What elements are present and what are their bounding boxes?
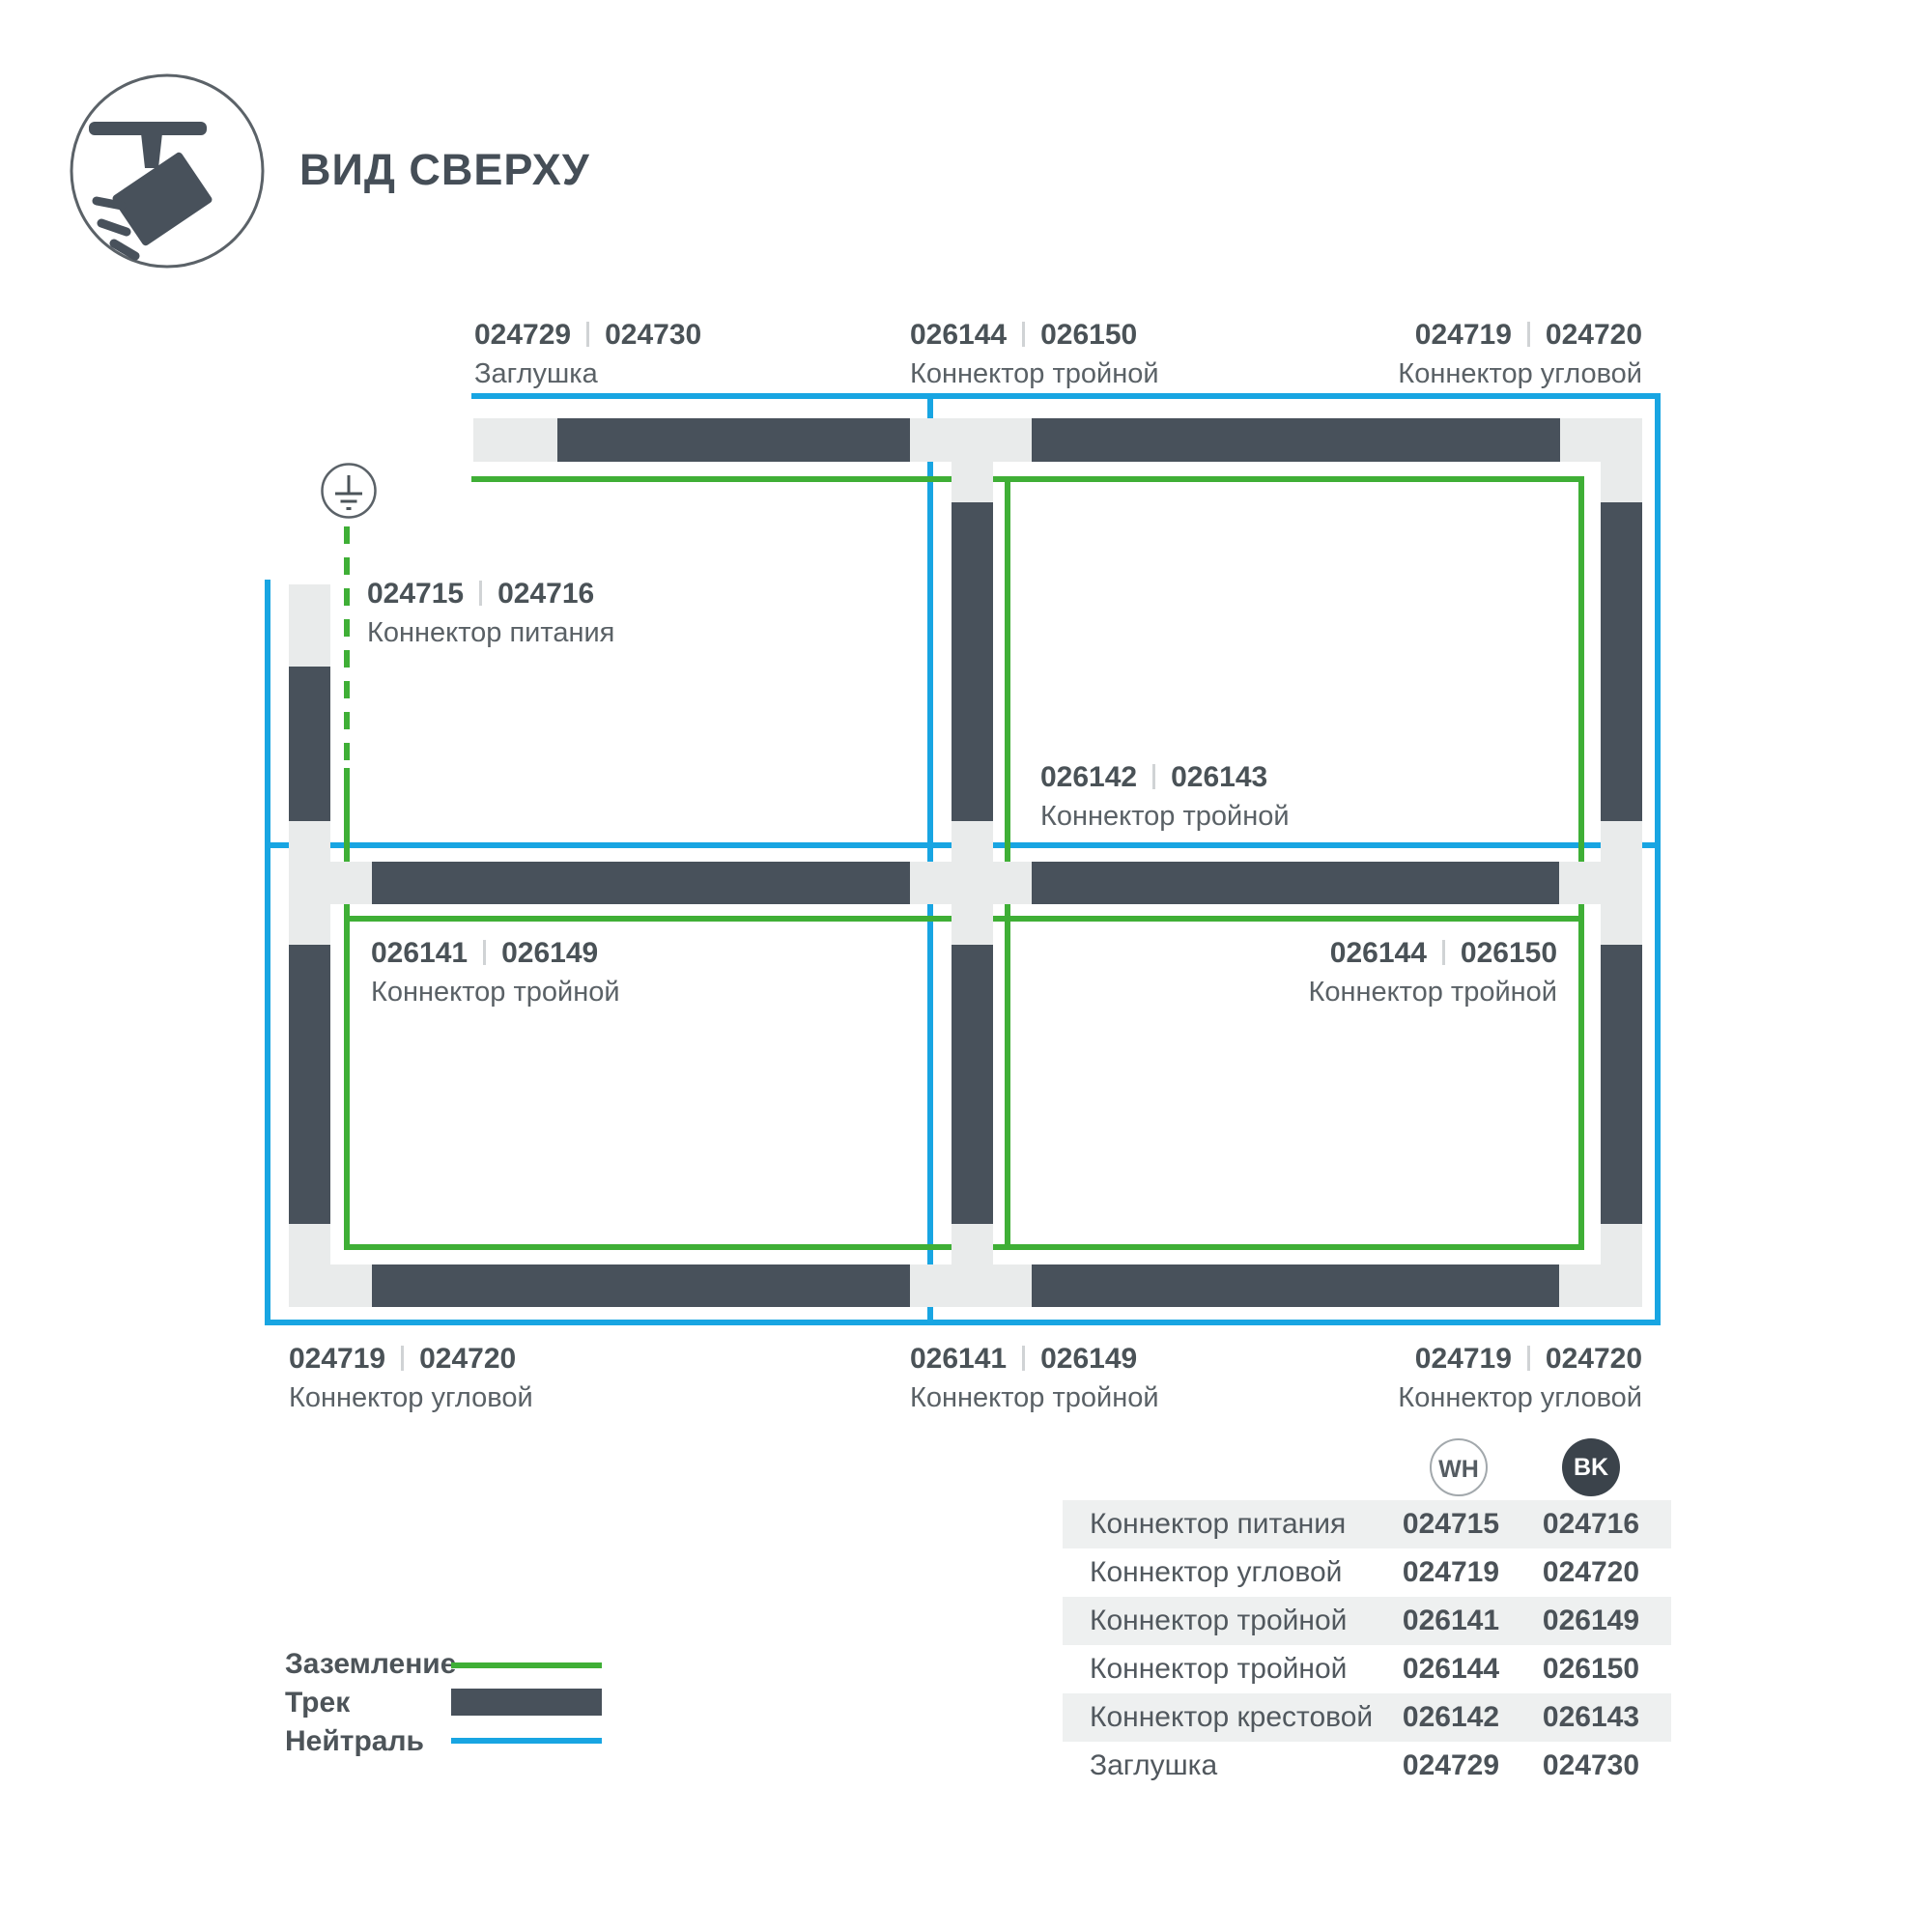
- t-connector-piece-bottom-stub: [952, 1224, 993, 1264]
- part-numbers: 026141026149: [910, 1343, 1159, 1376]
- table-cell-name: Коннектор тройной: [1090, 1597, 1347, 1645]
- neutral-line-right: [1655, 393, 1661, 1325]
- track-segment: [289, 667, 330, 821]
- divider: [586, 322, 589, 347]
- table-cell-name: Коннектор крестовой: [1090, 1693, 1373, 1742]
- part-number-bk: 024720: [1546, 319, 1642, 351]
- track-segment: [372, 862, 910, 904]
- divider: [483, 940, 486, 965]
- t-connector-piece-top: [910, 418, 1032, 462]
- part-number-wh: 026144: [1330, 937, 1427, 969]
- track-segment: [1032, 862, 1559, 904]
- endcap-piece-top-left: [473, 418, 557, 462]
- track-segment: [1032, 418, 1560, 462]
- track-segment: [952, 502, 993, 821]
- table-cell-bk: 024730: [1543, 1742, 1639, 1790]
- part-description: Коннектор питания: [367, 617, 614, 649]
- legend-item-line-blue: Нейтраль: [285, 1725, 424, 1758]
- neutral-line-center: [927, 393, 933, 1325]
- part-label-triple-connector-lower-left: 026141026149Коннектор тройной: [371, 937, 620, 1009]
- divider: [1527, 322, 1530, 347]
- corner-piece-bottom-left-stub: [289, 1224, 330, 1264]
- table-row: Коннектор тройной026144026150: [1063, 1645, 1671, 1693]
- part-label-corner-connector-top-right: 024719024720Коннектор угловой: [1398, 319, 1642, 390]
- part-number-wh: 024719: [1415, 1343, 1512, 1375]
- table-cell-wh: 024719: [1403, 1548, 1499, 1597]
- table-cell-bk: 026143: [1543, 1693, 1639, 1742]
- table-cell-name: Коннектор питания: [1090, 1500, 1346, 1548]
- part-description: Коннектор тройной: [1308, 977, 1557, 1009]
- ground-icon: [320, 462, 378, 520]
- part-number-wh: 026144: [910, 319, 1007, 351]
- part-number-bk: 024720: [419, 1343, 516, 1375]
- table-cell-wh: 026142: [1403, 1693, 1499, 1742]
- part-label-corner-connector-bottom-right: 024719024720Коннектор угловой: [1398, 1343, 1642, 1414]
- table-cell-wh: 026144: [1403, 1645, 1499, 1693]
- part-number-wh: 024729: [474, 319, 571, 351]
- part-numbers: 024715024716: [367, 578, 614, 611]
- neutral-line-bottom: [265, 1320, 1661, 1325]
- legend-label: Трек: [285, 1687, 350, 1719]
- table-cell-name: Заглушка: [1090, 1742, 1217, 1790]
- part-label-corner-connector-bottom-left: 024719024720Коннектор угловой: [289, 1343, 533, 1414]
- page-title: ВИД СВЕРХУ: [299, 145, 590, 195]
- legend-swatch-line-blue: [451, 1738, 602, 1744]
- part-description: Коннектор тройной: [1040, 801, 1290, 833]
- part-number-wh: 026141: [910, 1343, 1007, 1375]
- power-connector-piece: [289, 584, 330, 667]
- t-connector-piece-left-stub-a: [289, 821, 330, 862]
- corner-piece-bottom-right-stub: [1601, 1224, 1642, 1264]
- table-cell-bk: 026150: [1543, 1645, 1639, 1693]
- legend-item-bar-dark: Трек: [285, 1687, 350, 1719]
- divider: [1022, 1346, 1025, 1371]
- corner-piece-top-right: [1560, 418, 1642, 462]
- cross-connector-piece-stub-a: [952, 821, 993, 862]
- table-cell-wh: 024715: [1403, 1500, 1499, 1548]
- t-connector-piece-right: [1559, 862, 1642, 904]
- part-description: Заглушка: [474, 358, 701, 390]
- color-badge-bk: BK: [1562, 1438, 1620, 1496]
- part-label-triple-connector-top: 026144026150Коннектор тройной: [910, 319, 1159, 390]
- t-connector-piece-top-stub: [952, 462, 993, 502]
- legend-label: Нейтраль: [285, 1725, 424, 1757]
- part-numbers: 024729024730: [474, 319, 701, 352]
- part-number-bk: 024716: [497, 578, 594, 610]
- color-badge-wh: WH: [1430, 1438, 1488, 1496]
- table-cell-bk: 024720: [1543, 1548, 1639, 1597]
- part-numbers: 026144026150: [1308, 937, 1557, 970]
- parts-table: Коннектор питания024715024716Коннектор у…: [1063, 1500, 1671, 1790]
- cross-connector-piece: [910, 862, 1032, 904]
- table-cell-name: Коннектор угловой: [1090, 1548, 1342, 1597]
- track-segment: [372, 1264, 910, 1307]
- track-segment: [557, 418, 910, 462]
- part-number-wh: 026142: [1040, 761, 1137, 793]
- cross-connector-piece-stub-b: [952, 904, 993, 945]
- neutral-line-left: [265, 580, 270, 1325]
- part-numbers: 026141026149: [371, 937, 620, 970]
- track-segment: [952, 945, 993, 1224]
- legend-label: Заземление: [285, 1648, 456, 1680]
- part-description: Коннектор тройной: [910, 358, 1159, 390]
- table-row: Заглушка024729024730: [1063, 1742, 1671, 1790]
- part-number-bk: 026143: [1171, 761, 1267, 793]
- corner-piece-top-right-stub: [1601, 462, 1642, 502]
- table-row: Коннектор угловой024719024720: [1063, 1548, 1671, 1597]
- part-number-bk: 024730: [605, 319, 701, 351]
- legend-swatch-line-green: [451, 1662, 602, 1668]
- part-label-triple-connector-bottom: 026141026149Коннектор тройной: [910, 1343, 1159, 1414]
- part-number-bk: 026150: [1040, 319, 1137, 351]
- t-connector-piece-bottom: [910, 1264, 1032, 1307]
- legend-swatch-bar-dark: [451, 1689, 602, 1716]
- table-row: Коннектор питания024715024716: [1063, 1500, 1671, 1548]
- part-description: Коннектор тройной: [910, 1382, 1159, 1414]
- track-light-icon: [69, 72, 266, 270]
- part-numbers: 024719024720: [1398, 319, 1642, 352]
- part-number-wh: 026141: [371, 937, 468, 969]
- corner-piece-bottom-left: [289, 1264, 372, 1307]
- spec-sheet: ВИД СВЕРХУ: [0, 0, 1932, 1932]
- part-label-cross-connector-center: 026142026143Коннектор тройной: [1040, 761, 1290, 833]
- table-cell-wh: 024729: [1403, 1742, 1499, 1790]
- table-row: Коннектор тройной026141026149: [1063, 1597, 1671, 1645]
- part-number-bk: 026150: [1461, 937, 1557, 969]
- part-number-bk: 026149: [1040, 1343, 1137, 1375]
- track-segment: [1601, 502, 1642, 821]
- part-number-bk: 026149: [501, 937, 598, 969]
- divider: [401, 1346, 404, 1371]
- ground-line-top: [471, 476, 1584, 482]
- track-segment: [289, 945, 330, 1224]
- ground-line-dashed: [344, 526, 350, 768]
- part-number-wh: 024719: [1415, 319, 1512, 351]
- part-label-endcap-top: 024729024730Заглушка: [474, 319, 701, 390]
- part-numbers: 026142026143: [1040, 761, 1290, 794]
- divider: [479, 581, 482, 606]
- table-cell-wh: 026141: [1403, 1597, 1499, 1645]
- ground-line-left: [344, 768, 350, 1250]
- t-connector-piece-left: [289, 862, 372, 904]
- part-description: Коннектор угловой: [1398, 358, 1642, 390]
- part-numbers: 024719024720: [1398, 1343, 1642, 1376]
- t-connector-piece-right-stub-b: [1601, 904, 1642, 945]
- table-cell-bk: 026149: [1543, 1597, 1639, 1645]
- neutral-line-top: [471, 393, 1661, 399]
- t-connector-piece-right-stub-a: [1601, 821, 1642, 862]
- part-label-power-connector: 024715024716Коннектор питания: [367, 578, 614, 649]
- divider: [1527, 1346, 1530, 1371]
- track-segment: [1032, 1264, 1559, 1307]
- track-segment: [1601, 945, 1642, 1224]
- divider: [1442, 940, 1445, 965]
- part-number-bk: 024720: [1546, 1343, 1642, 1375]
- table-cell-name: Коннектор тройной: [1090, 1645, 1347, 1693]
- part-description: Коннектор тройной: [371, 977, 620, 1009]
- part-description: Коннектор угловой: [1398, 1382, 1642, 1414]
- corner-piece-bottom-right: [1559, 1264, 1642, 1307]
- table-row: Коннектор крестовой026142026143: [1063, 1693, 1671, 1742]
- part-number-wh: 024719: [289, 1343, 385, 1375]
- part-numbers: 026144026150: [910, 319, 1159, 352]
- divider: [1022, 322, 1025, 347]
- part-label-triple-connector-lower-right: 026144026150Коннектор тройной: [1308, 937, 1557, 1009]
- t-connector-piece-left-stub-b: [289, 904, 330, 945]
- divider: [1152, 764, 1155, 789]
- table-cell-bk: 024716: [1543, 1500, 1639, 1548]
- part-numbers: 024719024720: [289, 1343, 533, 1376]
- part-description: Коннектор угловой: [289, 1382, 533, 1414]
- legend-item-line-green: Заземление: [285, 1648, 456, 1681]
- part-number-wh: 024715: [367, 578, 464, 610]
